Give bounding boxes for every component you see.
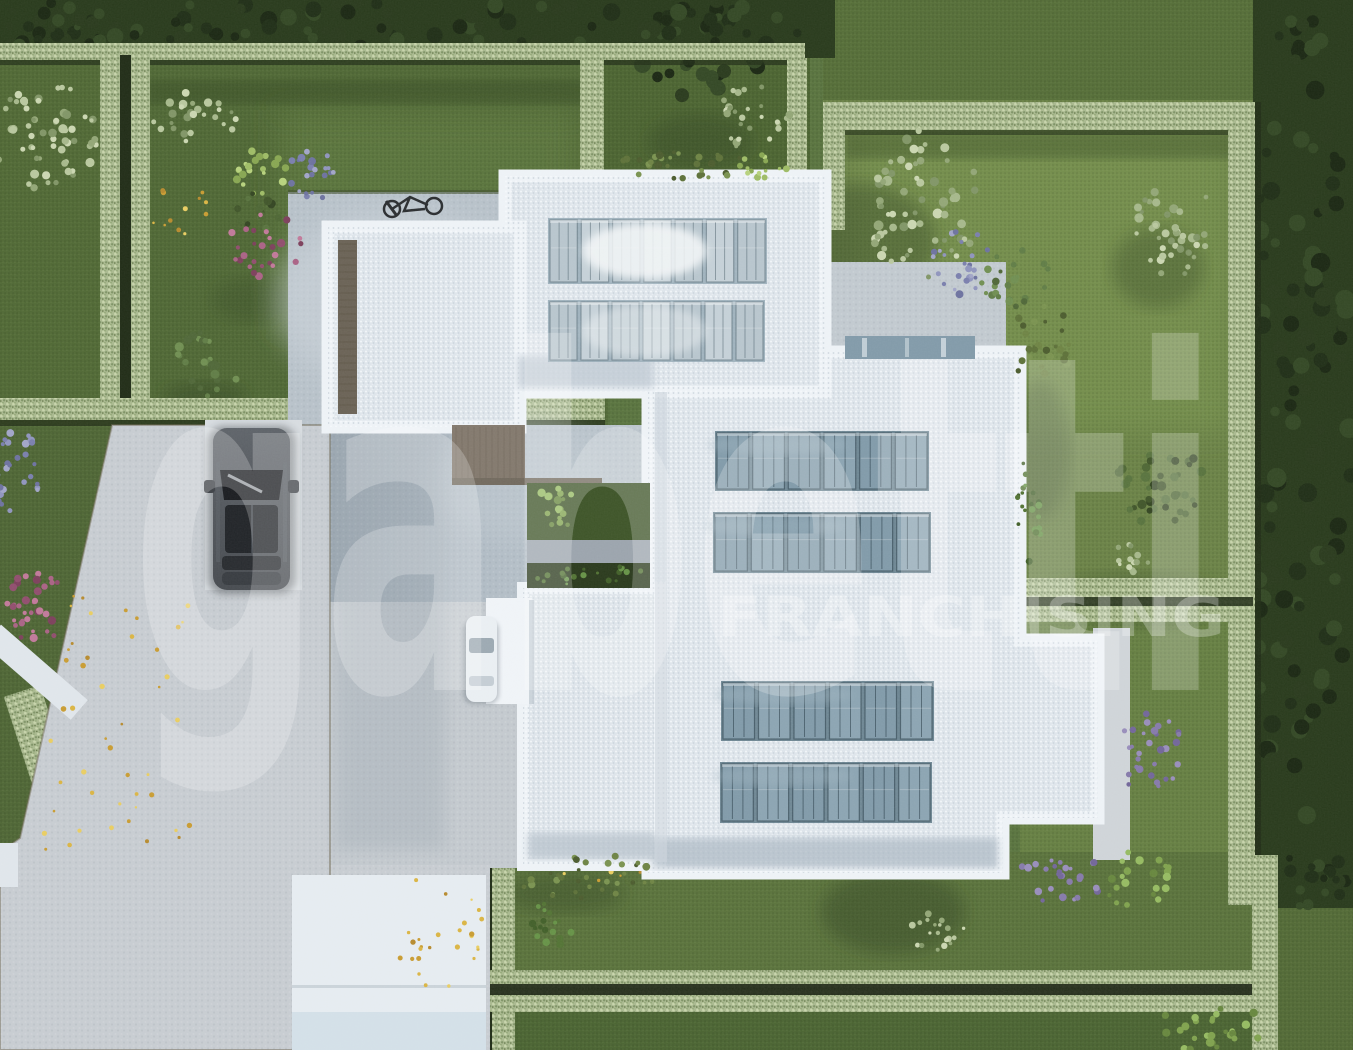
watermark: gabetti FRANCHISING xyxy=(131,254,1225,801)
render-canvas: gabetti FRANCHISING xyxy=(0,0,1353,1050)
watermark-brand-text: gabetti xyxy=(131,254,1221,801)
aerial-property-render: gabetti FRANCHISING xyxy=(0,0,1353,1050)
watermark-subtitle-text: FRANCHISING xyxy=(717,585,1225,649)
